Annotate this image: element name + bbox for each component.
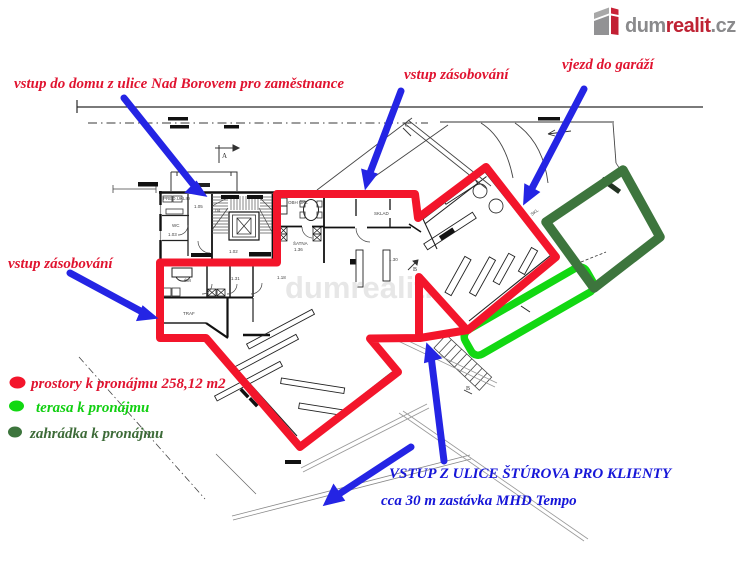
svg-text:dumrealit.: dumrealit. [285, 270, 433, 305]
svg-text:1.03: 1.03 [168, 232, 177, 237]
svg-text:ŠM: ŠM [184, 277, 191, 283]
svg-text:zahrádka k pronájmu: zahrádka k pronájmu [29, 426, 163, 442]
svg-text:B: B [466, 386, 470, 392]
svg-text:1.36: 1.36 [294, 247, 303, 252]
svg-text:SKL: SKL [530, 207, 540, 216]
svg-text:.04: .04 [214, 208, 221, 213]
svg-text:ŠATNA: ŠATNA [293, 240, 308, 246]
svg-text:vstup zásobování: vstup zásobování [404, 67, 510, 83]
svg-text:cca 30 m zastávka MHD Tempo: cca 30 m zastávka MHD Tempo [381, 493, 577, 509]
svg-text:WC: WC [172, 223, 180, 228]
svg-text:terasa k pronájmu: terasa k pronájmu [36, 400, 149, 416]
svg-text:1.05: 1.05 [194, 204, 203, 209]
svg-text:vstup do domu z ulice Nad Boro: vstup do domu z ulice Nad Borovem pro za… [14, 76, 344, 92]
svg-text:prostory k pronájmu 258,12 m2: prostory k pronájmu 258,12 m2 [29, 376, 226, 392]
svg-text:A: A [222, 152, 227, 160]
svg-text:1.30: 1.30 [389, 257, 398, 262]
svg-text:1.31: 1.31 [231, 276, 240, 281]
svg-text:vstup zásobování: vstup zásobování [8, 256, 114, 272]
svg-text:TRAF: TRAF [183, 311, 195, 316]
svg-text:PŘED.ÚKLID: PŘED.ÚKLID [163, 194, 191, 201]
svg-text:SKLAD: SKLAD [374, 211, 390, 216]
svg-text:vjezd do garáží: vjezd do garáží [562, 57, 655, 73]
svg-text:dumrealit.cz: dumrealit.cz [625, 15, 736, 37]
svg-text:OBH ÚKL: OBH ÚKL [288, 199, 308, 205]
svg-text:1.02: 1.02 [229, 249, 238, 254]
svg-text:VSTUP Z ULICE ŠTÚROVA PRO KLIE: VSTUP Z ULICE ŠTÚROVA PRO KLIENTY [389, 465, 673, 482]
